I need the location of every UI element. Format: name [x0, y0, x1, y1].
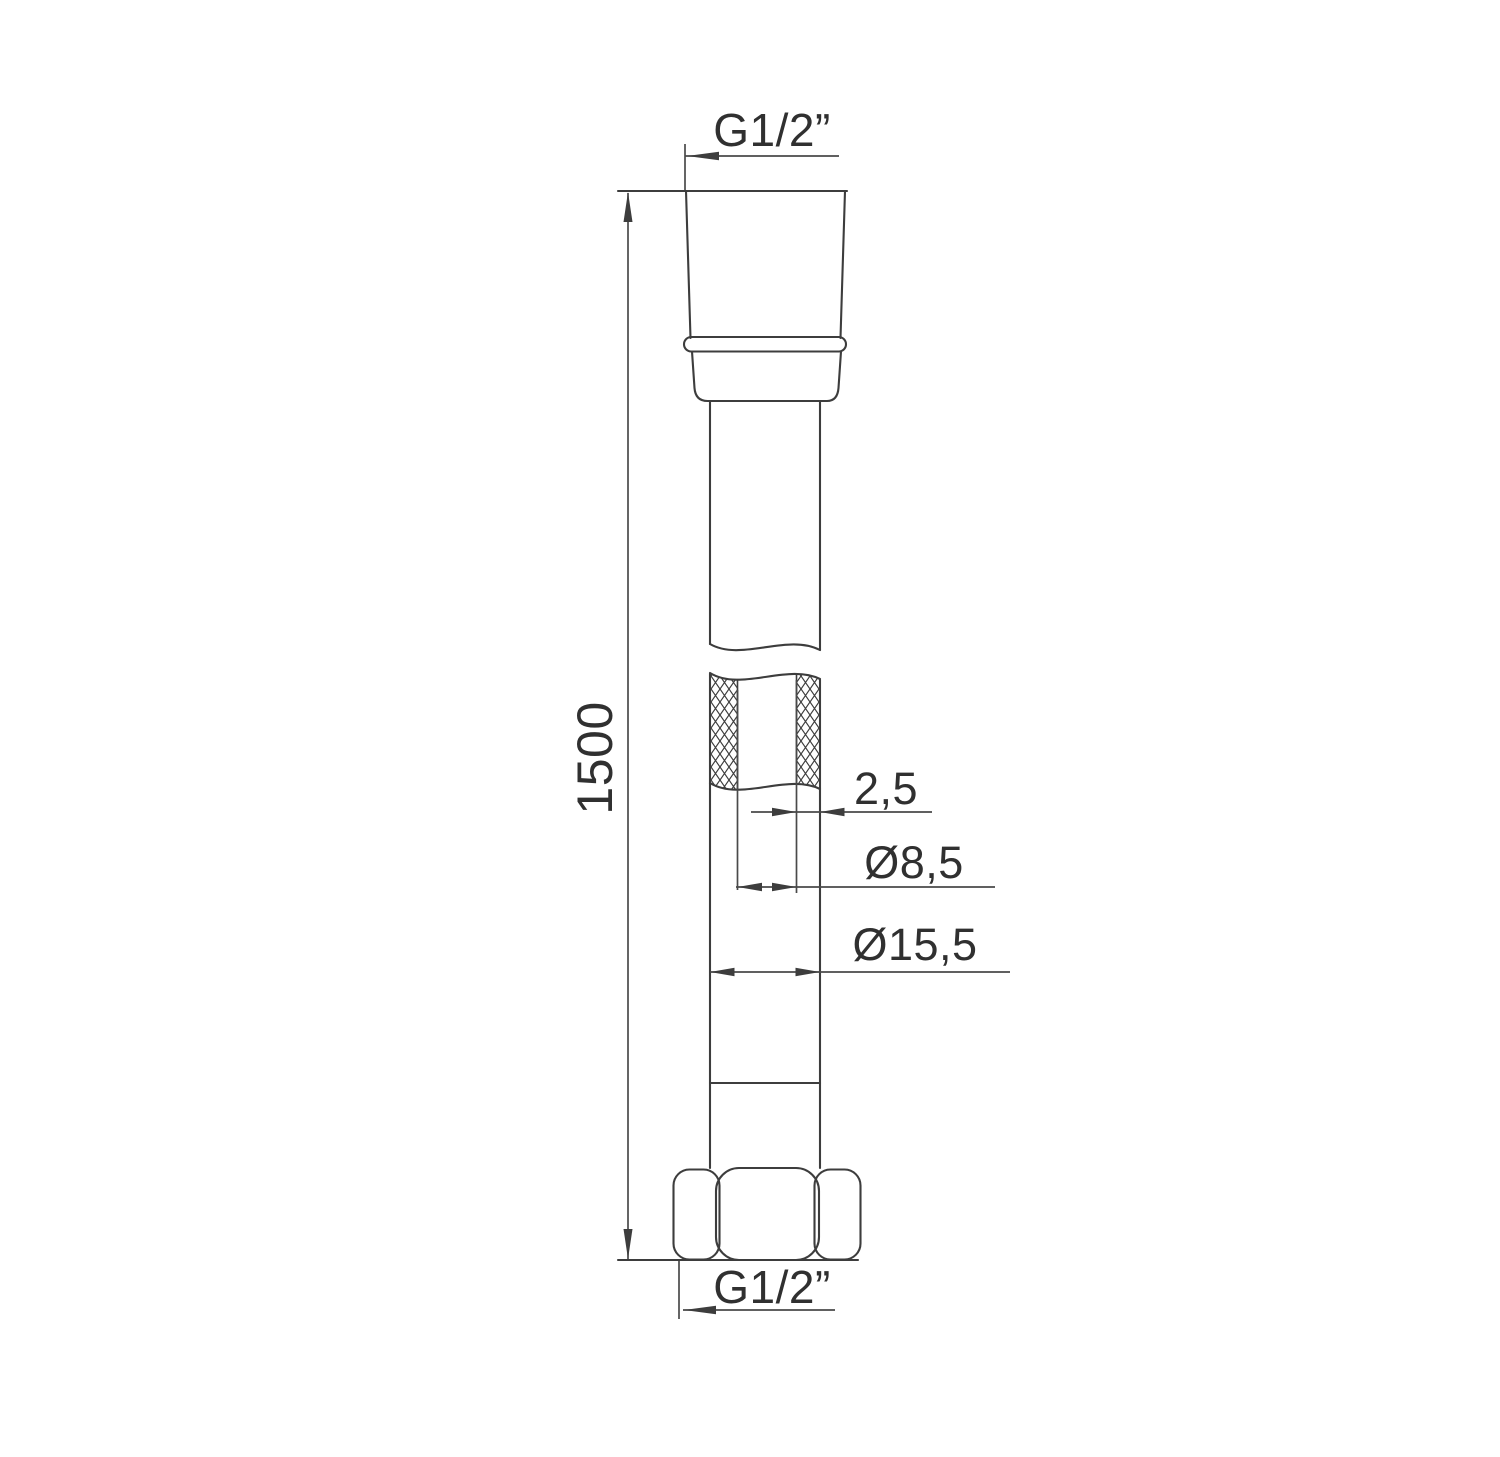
nut-left-facet [674, 1170, 720, 1260]
dim-bottom-thread: G1/2” [679, 1261, 835, 1319]
outer-diameter-label: Ø15,5 [852, 919, 977, 970]
hatch-right-wall [797, 660, 821, 800]
dim-top-thread: G1/2” [685, 104, 839, 190]
cone-left-edge [686, 191, 691, 338]
arrowhead-left [684, 1306, 716, 1314]
drawing-canvas: 1500 G1/2” 2,5 Ø8,5 Ø15,5 G1/2” [0, 0, 1500, 1457]
arrowhead-right [772, 808, 797, 816]
arrowhead-down [624, 1229, 633, 1259]
cone-right-edge [841, 191, 846, 338]
top-thread-label: G1/2” [713, 104, 831, 156]
arrowhead-right [796, 968, 821, 976]
inner-diameter-label: Ø8,5 [864, 837, 964, 888]
arrowhead-up [624, 192, 633, 222]
braided-section [710, 660, 820, 893]
arrowhead-left [710, 968, 735, 976]
hatch-left-wall [710, 660, 738, 800]
cone-ring [684, 337, 846, 352]
shower-hose-technical-drawing: 1500 G1/2” 2,5 Ø8,5 Ø15,5 G1/2” [0, 0, 1500, 1457]
arrowhead-right [772, 883, 797, 891]
hose-upper-tube [710, 401, 820, 650]
hose-body [618, 191, 861, 1260]
break-line-upper [710, 644, 820, 650]
bottom-thread-label: G1/2” [713, 1261, 831, 1313]
cone-fitting [618, 191, 847, 338]
dim-outer-diameter: Ø15,5 [710, 919, 1010, 976]
dim-length: 1500 [567, 192, 633, 1259]
nut-right-facet [815, 1170, 861, 1260]
wall-thickness-label: 2,5 [854, 763, 918, 814]
hex-nut [618, 1168, 861, 1260]
dim-inner-diameter: Ø8,5 [736, 837, 995, 891]
arrowhead-left [738, 883, 763, 891]
nut-center-facet [716, 1168, 819, 1260]
length-label: 1500 [567, 701, 623, 814]
dim-wall-thickness: 2,5 [751, 763, 932, 816]
arrowhead-left [820, 808, 845, 816]
cone-collar [692, 352, 841, 402]
